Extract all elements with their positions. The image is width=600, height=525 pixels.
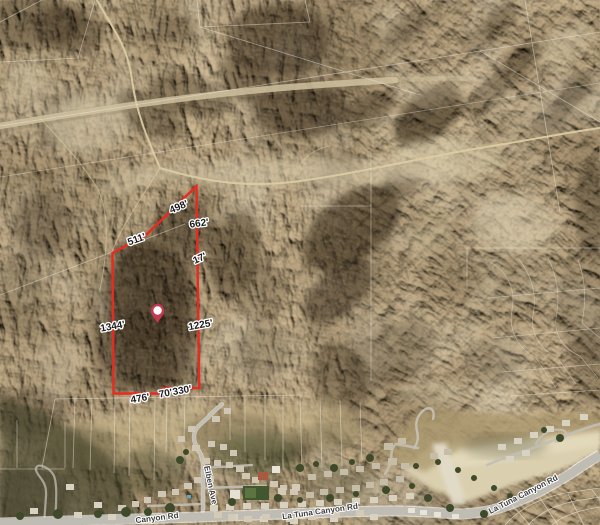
svg-text:70': 70' [158,387,173,400]
